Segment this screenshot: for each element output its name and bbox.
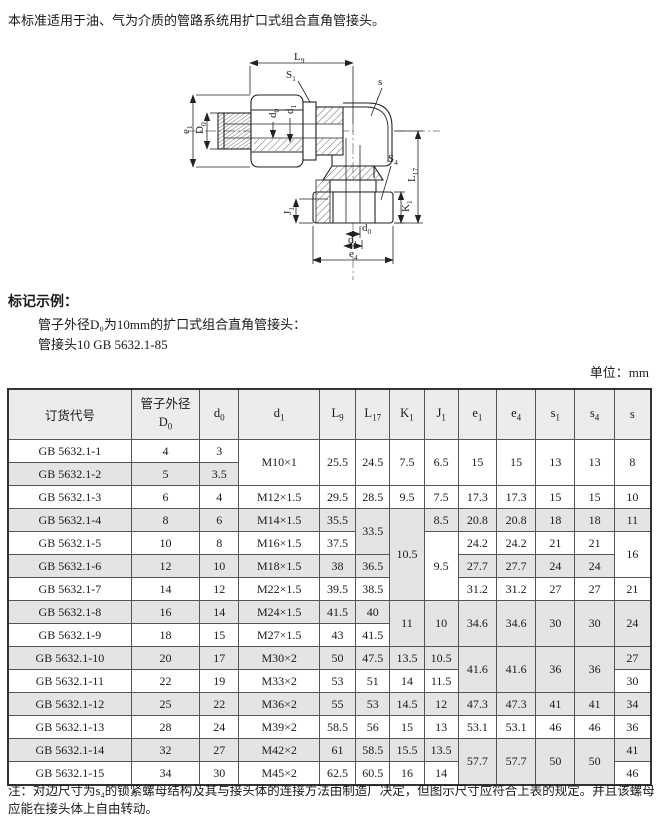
value-cell: 36 xyxy=(536,647,575,693)
value-cell: 19 xyxy=(200,670,239,693)
value-cell: 43 xyxy=(319,624,355,647)
unit-label: 单位：mm xyxy=(590,362,649,381)
value-cell: 7.5 xyxy=(390,440,424,486)
value-cell: 17.3 xyxy=(458,486,496,509)
order-code-cell: GB 5632.1-14 xyxy=(8,739,131,762)
value-cell: 21 xyxy=(614,578,651,601)
value-cell: M10×1 xyxy=(239,440,320,486)
label-e1: e1 xyxy=(180,125,194,134)
value-cell: 8 xyxy=(614,440,651,486)
label-s: s xyxy=(378,76,382,88)
value-cell: 30 xyxy=(536,601,575,647)
value-cell: 32 xyxy=(131,739,199,762)
value-cell: 6 xyxy=(131,486,199,509)
value-cell: 47.5 xyxy=(356,647,390,670)
value-cell: 18 xyxy=(131,624,199,647)
value-cell: 7.5 xyxy=(424,486,458,509)
order-code-cell: GB 5632.1-9 xyxy=(8,624,131,647)
value-cell: 27 xyxy=(614,647,651,670)
value-cell: 41 xyxy=(536,693,575,716)
value-cell: 24 xyxy=(614,601,651,647)
value-cell: 9.5 xyxy=(390,486,424,509)
value-cell: 12 xyxy=(200,578,239,601)
value-cell: 53 xyxy=(356,693,390,716)
value-cell: 36.5 xyxy=(356,555,390,578)
value-cell: 13 xyxy=(536,440,575,486)
value-cell: 24 xyxy=(575,555,614,578)
dimension-table-wrapper: 订货代号管子外径D0d0d1L9L17K1J1e1e4s1s4s GB 5632… xyxy=(7,388,652,786)
value-cell: 41 xyxy=(614,739,651,762)
value-cell: 13 xyxy=(575,440,614,486)
value-cell: 15.5 xyxy=(390,739,424,762)
example-line1: 管子外径D₀为10mm的扩口式组合直角管接头： xyxy=(38,314,306,333)
value-cell: 50 xyxy=(319,647,355,670)
table-row: GB 5632.1-364M12×1.529.528.59.57.517.317… xyxy=(8,486,651,509)
value-cell: 8 xyxy=(200,532,239,555)
value-cell: 20.8 xyxy=(496,509,535,532)
value-cell: 40 xyxy=(356,601,390,624)
value-cell: 41.6 xyxy=(496,647,535,693)
table-row: GB 5632.1-81614M24×1.541.540111034.634.6… xyxy=(8,601,651,624)
value-cell: 3.5 xyxy=(200,463,239,486)
value-cell: 41.5 xyxy=(319,601,355,624)
value-cell: 27.7 xyxy=(496,555,535,578)
table-row: GB 5632.1-5108M16×1.537.59.524.224.22121… xyxy=(8,532,651,555)
value-cell: 53 xyxy=(319,670,355,693)
value-cell: 16 xyxy=(131,601,199,624)
table-row: GB 5632.1-486M14×1.535.533.510.58.520.82… xyxy=(8,509,651,532)
value-cell: 10 xyxy=(200,555,239,578)
value-cell: 31.2 xyxy=(458,578,496,601)
value-cell: 20.8 xyxy=(458,509,496,532)
label-S4: S4 xyxy=(388,153,398,167)
value-cell: M27×1.5 xyxy=(239,624,320,647)
value-cell: 5 xyxy=(131,463,199,486)
table-row: GB 5632.1-143227M42×26158.515.513.557.75… xyxy=(8,739,651,762)
intro-text: 本标准适用于油、气为介质的管路系统用扩口式组合直角管接头。 xyxy=(8,10,653,29)
value-cell: 8 xyxy=(131,509,199,532)
value-cell: 41.5 xyxy=(356,624,390,647)
value-cell: 11 xyxy=(614,509,651,532)
value-cell: 46 xyxy=(536,716,575,739)
value-cell: 39.5 xyxy=(319,578,355,601)
value-cell: 24 xyxy=(200,716,239,739)
fitting-drawing: L9 S1 s e1 D0 d0 d1 L17 S4 K1 J1 d0 d1 e… xyxy=(178,50,478,285)
value-cell: 58.5 xyxy=(356,739,390,762)
column-header: 订货代号 xyxy=(8,389,131,440)
order-code-cell: GB 5632.1-10 xyxy=(8,647,131,670)
column-header: s4 xyxy=(575,389,614,440)
value-cell: 30 xyxy=(575,601,614,647)
value-cell: 4 xyxy=(200,486,239,509)
example-line2: 管接头10 GB 5632.1-85 xyxy=(38,334,168,353)
label-S1: S1 xyxy=(286,69,296,83)
value-cell: M18×1.5 xyxy=(239,555,320,578)
value-cell: 16 xyxy=(614,532,651,578)
value-cell: M36×2 xyxy=(239,693,320,716)
footnote: 注：对边尺寸为s₄的锁紧螺母结构及其与接头体的连接方法由制造厂决定，但图示尺寸应… xyxy=(8,782,656,818)
column-header: d1 xyxy=(239,389,320,440)
label-e4: e4 xyxy=(349,248,358,262)
value-cell: 10.5 xyxy=(424,647,458,670)
value-cell: 61 xyxy=(319,739,355,762)
value-cell: 18 xyxy=(536,509,575,532)
value-cell: 34.6 xyxy=(458,601,496,647)
value-cell: 46 xyxy=(575,716,614,739)
label-L9: L9 xyxy=(294,51,305,65)
value-cell: M30×2 xyxy=(239,647,320,670)
value-cell: 37.5 xyxy=(319,532,355,555)
value-cell: 13.5 xyxy=(424,739,458,762)
value-cell: 24.5 xyxy=(356,440,390,486)
column-header: d0 xyxy=(200,389,239,440)
label-d1-bottom: d1 xyxy=(348,234,358,248)
column-header: 管子外径D0 xyxy=(131,389,199,440)
value-cell: 10 xyxy=(614,486,651,509)
value-cell: 15 xyxy=(575,486,614,509)
value-cell: 27 xyxy=(575,578,614,601)
value-cell: 47.3 xyxy=(458,693,496,716)
value-cell: 35.5 xyxy=(319,509,355,532)
example-heading: 标记示例： xyxy=(8,291,78,311)
value-cell: 51 xyxy=(356,670,390,693)
label-d0-bottom: d0 xyxy=(362,222,372,236)
value-cell: 10 xyxy=(131,532,199,555)
label-D0: D0 xyxy=(194,122,208,134)
value-cell: 28 xyxy=(131,716,199,739)
value-cell: 38.5 xyxy=(356,578,390,601)
table-header-row: 订货代号管子外径D0d0d1L9L17K1J1e1e4s1s4s xyxy=(8,389,651,440)
value-cell: 34.6 xyxy=(496,601,535,647)
value-cell: 12 xyxy=(131,555,199,578)
label-L17: L17 xyxy=(406,168,420,182)
standard-document-page: 本标准适用于油、气为介质的管路系统用扩口式组合直角管接头。 xyxy=(0,0,659,825)
value-cell: 11.5 xyxy=(424,670,458,693)
order-code-cell: GB 5632.1-11 xyxy=(8,670,131,693)
fitting-body-outline xyxy=(218,95,393,223)
value-cell: 14.5 xyxy=(390,693,424,716)
column-header: e1 xyxy=(458,389,496,440)
value-cell: 58.5 xyxy=(319,716,355,739)
value-cell: 55 xyxy=(319,693,355,716)
value-cell: 28.5 xyxy=(356,486,390,509)
value-cell: 30 xyxy=(614,670,651,693)
order-code-cell: GB 5632.1-4 xyxy=(8,509,131,532)
column-header: K1 xyxy=(390,389,424,440)
value-cell: 14 xyxy=(131,578,199,601)
table-row: GB 5632.1-61210M18×1.53836.527.727.72424 xyxy=(8,555,651,578)
column-header: e4 xyxy=(496,389,535,440)
value-cell: 36 xyxy=(575,647,614,693)
label-J1: J1 xyxy=(282,207,296,215)
column-header: J1 xyxy=(424,389,458,440)
value-cell: 33.5 xyxy=(356,509,390,555)
value-cell: 6 xyxy=(200,509,239,532)
value-cell: 36 xyxy=(614,716,651,739)
value-cell: 18 xyxy=(575,509,614,532)
value-cell: 10.5 xyxy=(390,509,424,601)
value-cell: 27 xyxy=(200,739,239,762)
value-cell: 25.5 xyxy=(319,440,355,486)
value-cell: M24×1.5 xyxy=(239,601,320,624)
value-cell: 15 xyxy=(458,440,496,486)
value-cell: 3 xyxy=(200,440,239,463)
value-cell: 10 xyxy=(424,601,458,647)
value-cell: 53.1 xyxy=(496,716,535,739)
value-cell: 22 xyxy=(131,670,199,693)
table-row: GB 5632.1-71412M22×1.539.538.531.231.227… xyxy=(8,578,651,601)
value-cell: 15 xyxy=(496,440,535,486)
order-code-cell: GB 5632.1-8 xyxy=(8,601,131,624)
value-cell: 57.7 xyxy=(458,739,496,786)
value-cell: 24 xyxy=(536,555,575,578)
value-cell: 20 xyxy=(131,647,199,670)
value-cell: 14 xyxy=(390,670,424,693)
value-cell: M42×2 xyxy=(239,739,320,762)
value-cell: 9.5 xyxy=(424,532,458,601)
value-cell: 8.5 xyxy=(424,509,458,532)
column-header: s xyxy=(614,389,651,440)
value-cell: M14×1.5 xyxy=(239,509,320,532)
value-cell: 41.6 xyxy=(458,647,496,693)
value-cell: 21 xyxy=(575,532,614,555)
order-code-cell: GB 5632.1-3 xyxy=(8,486,131,509)
value-cell: 17 xyxy=(200,647,239,670)
order-code-cell: GB 5632.1-6 xyxy=(8,555,131,578)
value-cell: M16×1.5 xyxy=(239,532,320,555)
value-cell: 24.2 xyxy=(496,532,535,555)
value-cell: 47.3 xyxy=(496,693,535,716)
column-header: L9 xyxy=(319,389,355,440)
value-cell: 31.2 xyxy=(496,578,535,601)
value-cell: 57.7 xyxy=(496,739,535,786)
value-cell: 41 xyxy=(575,693,614,716)
value-cell: 13.5 xyxy=(390,647,424,670)
value-cell: 13 xyxy=(424,716,458,739)
value-cell: 27.7 xyxy=(458,555,496,578)
value-cell: 50 xyxy=(575,739,614,786)
value-cell: 56 xyxy=(356,716,390,739)
column-header: L17 xyxy=(356,389,390,440)
value-cell: 25 xyxy=(131,693,199,716)
value-cell: 53.1 xyxy=(458,716,496,739)
value-cell: M12×1.5 xyxy=(239,486,320,509)
value-cell: 24.2 xyxy=(458,532,496,555)
value-cell: 38 xyxy=(319,555,355,578)
order-code-cell: GB 5632.1-5 xyxy=(8,532,131,555)
table-row: GB 5632.1-122522M36×2555314.51247.347.34… xyxy=(8,693,651,716)
value-cell: 17.3 xyxy=(496,486,535,509)
value-cell: 50 xyxy=(536,739,575,786)
table-row: GB 5632.1-102017M30×25047.513.510.541.64… xyxy=(8,647,651,670)
value-cell: 29.5 xyxy=(319,486,355,509)
order-code-cell: GB 5632.1-1 xyxy=(8,440,131,463)
table-row: GB 5632.1-132824M39×258.556151353.153.14… xyxy=(8,716,651,739)
column-header: s1 xyxy=(536,389,575,440)
value-cell: 14 xyxy=(200,601,239,624)
value-cell: M39×2 xyxy=(239,716,320,739)
value-cell: 11 xyxy=(390,601,424,647)
order-code-cell: GB 5632.1-12 xyxy=(8,693,131,716)
value-cell: 15 xyxy=(536,486,575,509)
order-code-cell: GB 5632.1-13 xyxy=(8,716,131,739)
table-row: GB 5632.1-143M10×125.524.57.56.515151313… xyxy=(8,440,651,463)
value-cell: 15 xyxy=(390,716,424,739)
value-cell: 6.5 xyxy=(424,440,458,486)
value-cell: 22 xyxy=(200,693,239,716)
value-cell: 21 xyxy=(536,532,575,555)
value-cell: M33×2 xyxy=(239,670,320,693)
value-cell: 4 xyxy=(131,440,199,463)
dimension-table: 订货代号管子外径D0d0d1L9L17K1J1e1e4s1s4s GB 5632… xyxy=(7,388,652,786)
value-cell: M22×1.5 xyxy=(239,578,320,601)
value-cell: 15 xyxy=(200,624,239,647)
order-code-cell: GB 5632.1-7 xyxy=(8,578,131,601)
order-code-cell: GB 5632.1-2 xyxy=(8,463,131,486)
label-K1: K1 xyxy=(400,200,414,212)
value-cell: 12 xyxy=(424,693,458,716)
value-cell: 27 xyxy=(536,578,575,601)
value-cell: 34 xyxy=(614,693,651,716)
